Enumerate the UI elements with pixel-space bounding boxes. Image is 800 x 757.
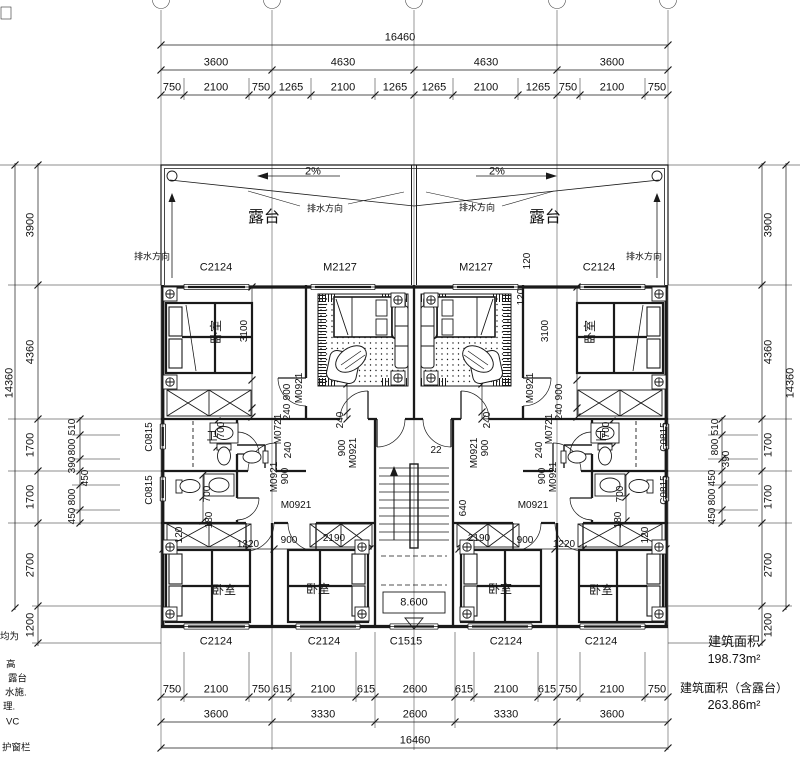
dim-label: 450	[68, 508, 78, 525]
dim-label: 750	[163, 685, 181, 696]
dim-label: 16460	[385, 33, 416, 44]
dim-label: M0921	[470, 438, 480, 469]
dim-label: M0921	[549, 462, 559, 493]
dim-label: 卧室	[584, 320, 596, 344]
dim-label: 900	[283, 384, 293, 401]
dim-label: 3100	[541, 320, 551, 342]
dim-label: 180	[205, 512, 215, 529]
dim-label: M2127	[323, 263, 357, 274]
dim-label: 390	[722, 451, 732, 468]
dim-label: 700	[203, 486, 213, 503]
dim-label: 排水方向	[626, 253, 662, 262]
dim-label: C2124	[308, 637, 340, 648]
toilet	[599, 447, 612, 465]
dim-label: 750	[163, 83, 181, 94]
dim-label: 2700	[764, 553, 775, 577]
extension-lines	[0, 78, 800, 728]
drain-arrowheads	[169, 193, 661, 202]
dim-label: 卧室	[306, 583, 330, 595]
dim-label: 排水方向	[134, 253, 170, 262]
dim-label: 120	[517, 289, 527, 306]
margin-note: 护窗栏	[2, 743, 31, 753]
dim-label: 800	[711, 439, 721, 456]
dim-label: 2600	[403, 710, 427, 721]
dim-label: 2100	[600, 83, 624, 94]
dim-label: 2100	[311, 685, 335, 696]
dim-label: M0921	[518, 501, 549, 511]
dim-label: 750	[559, 83, 577, 94]
area-title-1: 建筑面积	[668, 634, 800, 651]
dim-label: 240	[336, 412, 346, 429]
roof-drain-right	[652, 171, 662, 181]
margin-note: 理.	[3, 702, 15, 712]
dim-label: 180	[614, 512, 624, 529]
dim-label: 1700	[764, 485, 775, 509]
dim-label: 1265	[383, 83, 407, 94]
dim-label: M0721	[274, 414, 284, 445]
dim-label: C0815	[145, 475, 155, 504]
dim-label: 2100	[204, 685, 228, 696]
dim-label: 900	[555, 384, 565, 401]
dim-label: 240	[535, 442, 545, 459]
dim-label: 4360	[26, 340, 37, 364]
dim-label: 240	[284, 442, 294, 459]
dim-label: M0921	[349, 438, 359, 469]
dim-label: 120	[641, 527, 651, 544]
margin-note: 高	[6, 660, 16, 670]
dim-label: 16460	[400, 736, 431, 747]
bathroom-fixtures	[176, 421, 653, 496]
dim-label: 450	[708, 470, 718, 487]
dim-label: C2124	[585, 637, 617, 648]
dim-label: 900	[538, 468, 548, 485]
dim-label: 3330	[311, 710, 335, 721]
dim-label: 22	[430, 446, 441, 456]
toilet	[180, 480, 200, 493]
dim-label: 2190	[323, 534, 345, 544]
dim-label: 640	[459, 500, 469, 517]
dim-label: 900	[481, 440, 491, 457]
dim-label: 2100	[331, 83, 355, 94]
area-title-2: 建筑面积（含露台）	[668, 681, 800, 697]
dim-label: C2124	[583, 263, 615, 274]
margin-note: 均为	[0, 632, 19, 642]
dim-label: 900	[517, 536, 534, 546]
dim-label: 120	[175, 527, 185, 544]
dim-label: 1200	[26, 613, 37, 637]
dim-label: 900	[281, 468, 291, 485]
dim-label: 卧室	[589, 584, 613, 596]
dim-label: 750	[252, 83, 270, 94]
dim-label: 3600	[600, 710, 624, 721]
dim-label: M0921	[526, 373, 536, 404]
dim-label: 800	[68, 489, 78, 506]
dim-label: C2124	[490, 637, 522, 648]
dim-label: 615	[357, 685, 375, 696]
margin-note: 水施.	[5, 688, 27, 698]
dim-label: 1700	[26, 485, 37, 509]
dim-label: 390	[68, 457, 78, 474]
dim-label: 510	[711, 419, 721, 436]
dim-label: 240	[555, 404, 565, 421]
dim-label: C2124	[200, 637, 232, 648]
dim-label: 2600	[403, 685, 427, 696]
dim-label: 240	[483, 412, 493, 429]
dim-label: 14360	[5, 368, 16, 399]
dim-label: 卧室	[488, 583, 512, 595]
dim-label: 615	[538, 685, 556, 696]
dim-label: 240	[283, 404, 293, 421]
dim-label: M0921	[295, 373, 305, 404]
dim-label: 3900	[764, 213, 775, 237]
dim-label: 700	[602, 422, 612, 439]
dim-label: 1700	[26, 433, 37, 457]
dim-label: 2100	[600, 685, 624, 696]
dim-label: 3600	[600, 58, 624, 69]
dim-label: 450	[81, 470, 91, 487]
dim-label: 4360	[764, 340, 775, 364]
toilet	[243, 451, 261, 463]
bed	[166, 550, 250, 622]
dim-label: 700	[616, 486, 626, 503]
stair-up-arrow	[390, 466, 398, 476]
dim-label: 4630	[331, 58, 355, 69]
margin-note: VC	[6, 717, 19, 727]
floorplan-canvas: 1646036004630463036007502100750126521001…	[0, 0, 800, 757]
dim-label: C2124	[200, 263, 232, 274]
dim-label: M2127	[459, 263, 493, 274]
dim-label: 2%	[489, 167, 505, 178]
dim-label: 120	[523, 253, 533, 270]
area-value-1: 198.73m²	[668, 651, 800, 667]
dim-label: 卧室	[210, 320, 222, 344]
dim-label: 露台	[248, 210, 280, 226]
dim-label: 800	[708, 489, 718, 506]
dim-label: 800	[68, 439, 78, 456]
dim-label: 1265	[422, 83, 446, 94]
dim-label: 3900	[26, 213, 37, 237]
dim-label: 1220	[237, 540, 259, 550]
dim-label: C0815	[660, 475, 670, 504]
dim-label: 3600	[204, 58, 228, 69]
dim-label: C0815	[660, 422, 670, 451]
dim-label: 750	[252, 685, 270, 696]
dim-label: 2100	[494, 685, 518, 696]
dim-label: M0921	[270, 462, 280, 493]
dim-label: 卧室	[212, 584, 236, 596]
dim-label: 2100	[474, 83, 498, 94]
dim-label: 露台	[529, 210, 561, 226]
margin-note: 露台	[8, 674, 27, 684]
dim-label: 750	[648, 83, 666, 94]
dim-label: 排水方向	[459, 204, 495, 213]
dim-label: 450	[708, 508, 718, 525]
dim-label: 2700	[26, 553, 37, 577]
dim-label: 3330	[494, 710, 518, 721]
dim-label: M0921	[281, 501, 312, 511]
dim-label: 510	[68, 419, 78, 436]
roof-drain-left	[167, 171, 177, 181]
dim-label: 615	[273, 685, 291, 696]
dim-label: 700	[217, 422, 227, 439]
toilet	[218, 447, 231, 465]
dim-label: 2100	[204, 83, 228, 94]
dim-label: 3600	[204, 710, 228, 721]
dim-label: 4630	[474, 58, 498, 69]
dim-label: 排水方向	[307, 205, 343, 214]
dim-label: 900	[281, 536, 298, 546]
dim-label: C1515	[390, 637, 422, 648]
area-value-2: 263.86m²	[668, 697, 800, 713]
dim-label: M0721	[545, 414, 555, 445]
dim-label: 615	[455, 685, 473, 696]
dim-label: 2190	[468, 534, 490, 544]
dim-label: 1265	[526, 83, 550, 94]
dim-label: 1220	[553, 540, 575, 550]
area-summary: 建筑面积 198.73m² 建筑面积（含露台） 263.86m²	[668, 634, 800, 713]
dim-label: 14360	[786, 368, 797, 399]
dim-label: 1700	[764, 433, 775, 457]
toilet	[629, 480, 649, 493]
dim-label: 750	[648, 685, 666, 696]
dim-label: 2%	[305, 167, 321, 178]
dim-label: 1265	[279, 83, 303, 94]
dim-label: C0815	[145, 422, 155, 451]
dim-label: 3100	[240, 320, 250, 342]
dim-label: 900	[338, 440, 348, 457]
dim-label: 8.600	[400, 598, 428, 609]
dim-label: 750	[559, 685, 577, 696]
toilet	[568, 451, 586, 463]
